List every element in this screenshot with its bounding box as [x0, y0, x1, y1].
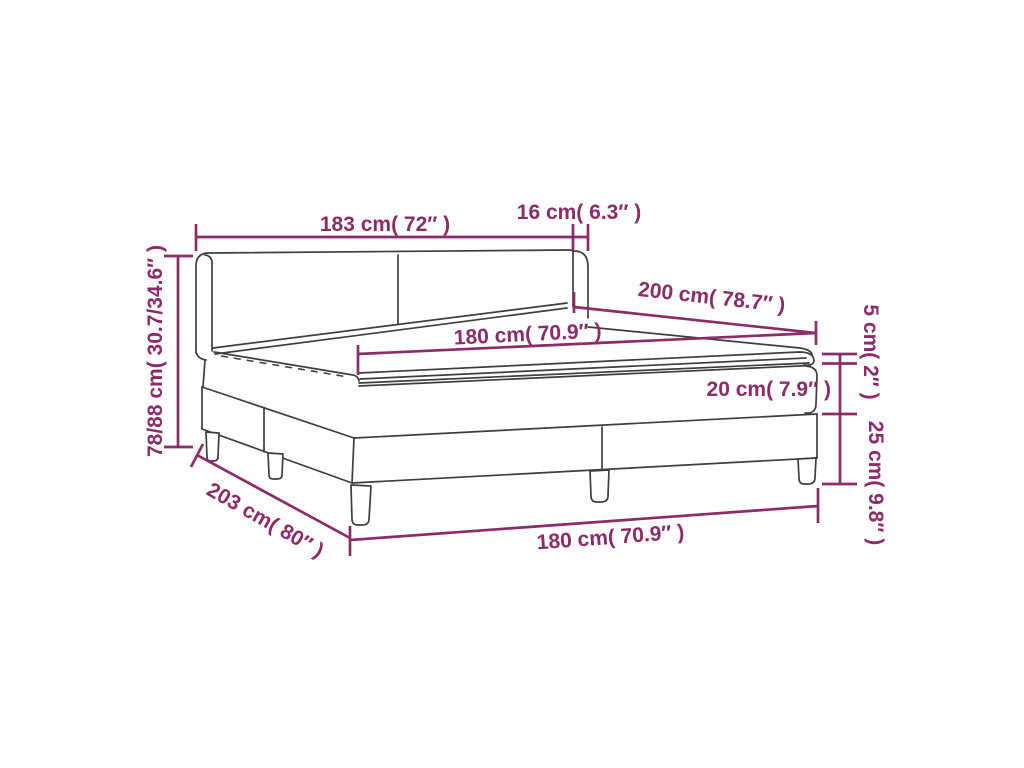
headboard-outline: [196, 250, 588, 387]
dim-headboard-height: [164, 256, 193, 447]
label-base-height: 25 cm( 9.8″ ): [864, 421, 887, 545]
box-spring-base: [202, 387, 817, 483]
bed-leg: [590, 470, 609, 502]
bed-leg: [798, 458, 816, 484]
label-headboard-height: 78/88 cm( 30.7/34.6″ ): [144, 245, 167, 457]
bed-dimension-diagram: 183 cm( 72″ ) 16 cm( 6.3″ ) 200 cm( 78.7…: [0, 0, 1024, 768]
bed-leg: [351, 485, 371, 525]
bed-leg: [206, 432, 219, 461]
mattress-stitch-seam: [221, 356, 348, 377]
dim-headboard-wing-depth: [573, 224, 588, 251]
dimension-diagram-page: 183 cm( 72″ ) 16 cm( 6.3″ ) 200 cm( 78.7…: [0, 0, 1024, 768]
bed-leg: [268, 453, 283, 479]
dim-right-height-stack: [822, 354, 857, 484]
label-headboard-wing-depth: 16 cm( 6.3″ ): [517, 201, 641, 224]
label-mattress-thickness: 20 cm( 7.9″ ): [707, 378, 831, 401]
label-topper-thickness: 5 cm( 2″ ): [859, 304, 882, 399]
label-bed-length: 200 cm( 78.7″ ): [637, 278, 786, 317]
label-headboard-width: 183 cm( 72″ ): [320, 213, 450, 236]
